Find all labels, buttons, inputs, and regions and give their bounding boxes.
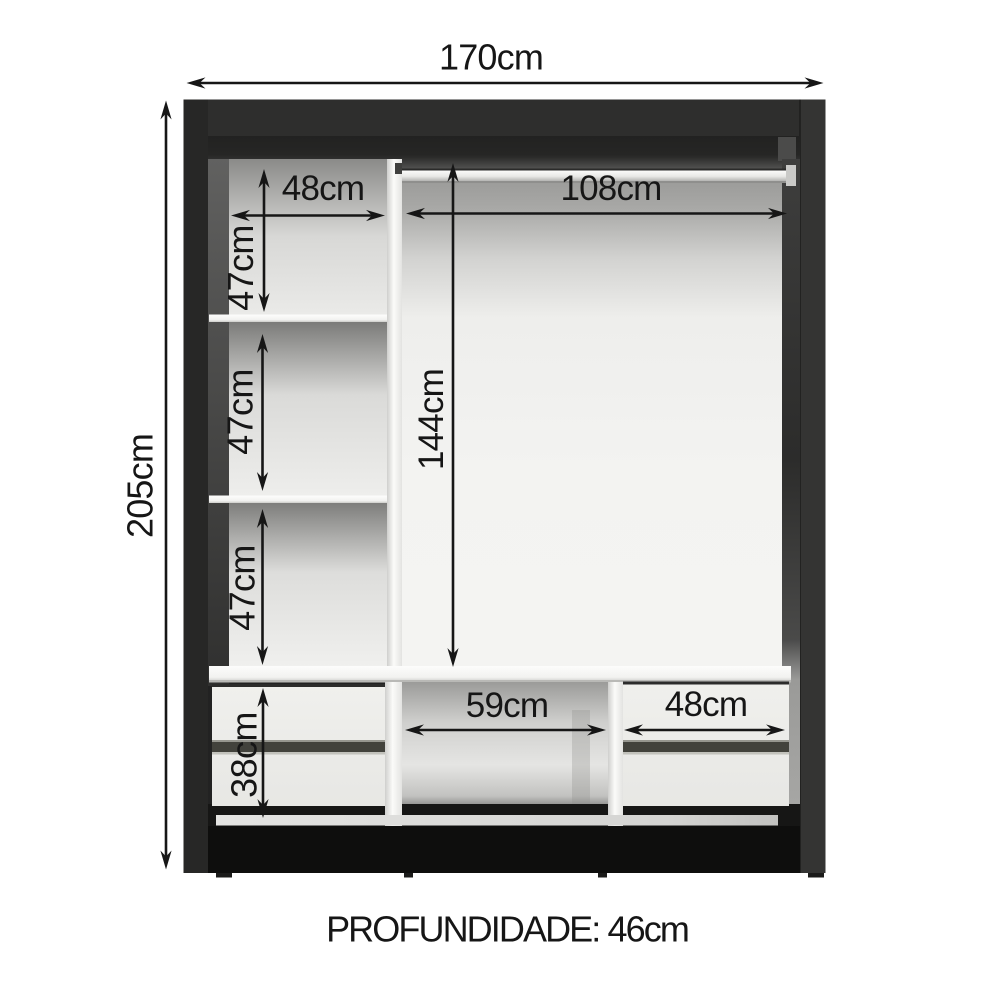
svg-text:108cm: 108cm xyxy=(560,169,661,208)
svg-text:47cm: 47cm xyxy=(222,545,263,631)
svg-text:48cm: 48cm xyxy=(282,169,364,208)
svg-text:48cm: 48cm xyxy=(665,685,747,724)
svg-text:144cm: 144cm xyxy=(412,369,451,470)
svg-text:170cm: 170cm xyxy=(439,37,543,78)
svg-text:47cm: 47cm xyxy=(220,369,261,455)
svg-text:59cm: 59cm xyxy=(466,686,548,725)
svg-text:38cm: 38cm xyxy=(224,712,265,798)
svg-text:PROFUNDIDADE: 46cm: PROFUNDIDADE: 46cm xyxy=(326,909,688,950)
svg-text:205cm: 205cm xyxy=(120,434,161,538)
svg-text:47cm: 47cm xyxy=(220,225,261,311)
